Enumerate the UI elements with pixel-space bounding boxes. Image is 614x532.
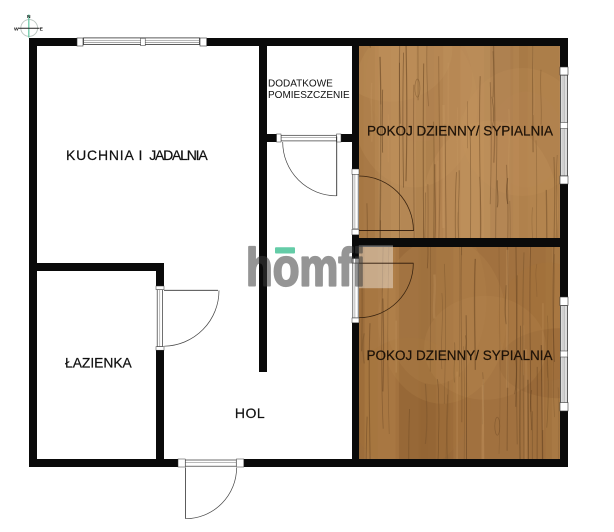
svg-text:KUCHNIA I: KUCHNIA I	[66, 147, 143, 163]
svg-text:HOL: HOL	[235, 405, 265, 421]
svg-text:E: E	[40, 26, 44, 32]
svg-text:POMIESZCZENIE: POMIESZCZENIE	[268, 90, 350, 101]
svg-text:POKOJ DZIENNY/ SYPIALNIA: POKOJ DZIENNY/ SYPIALNIA	[367, 123, 553, 138]
svg-text:N: N	[27, 14, 31, 20]
svg-text:ŁAZIENKA: ŁAZIENKA	[65, 355, 133, 370]
svg-text:homfi: homfi	[246, 239, 365, 298]
svg-text:JADALNIA: JADALNIA	[149, 147, 208, 163]
svg-text:POKOJ DZIENNY/ SYPIALNIA: POKOJ DZIENNY/ SYPIALNIA	[366, 348, 552, 363]
svg-text:W: W	[14, 26, 19, 32]
svg-text:DODATKOWE: DODATKOWE	[268, 79, 333, 90]
